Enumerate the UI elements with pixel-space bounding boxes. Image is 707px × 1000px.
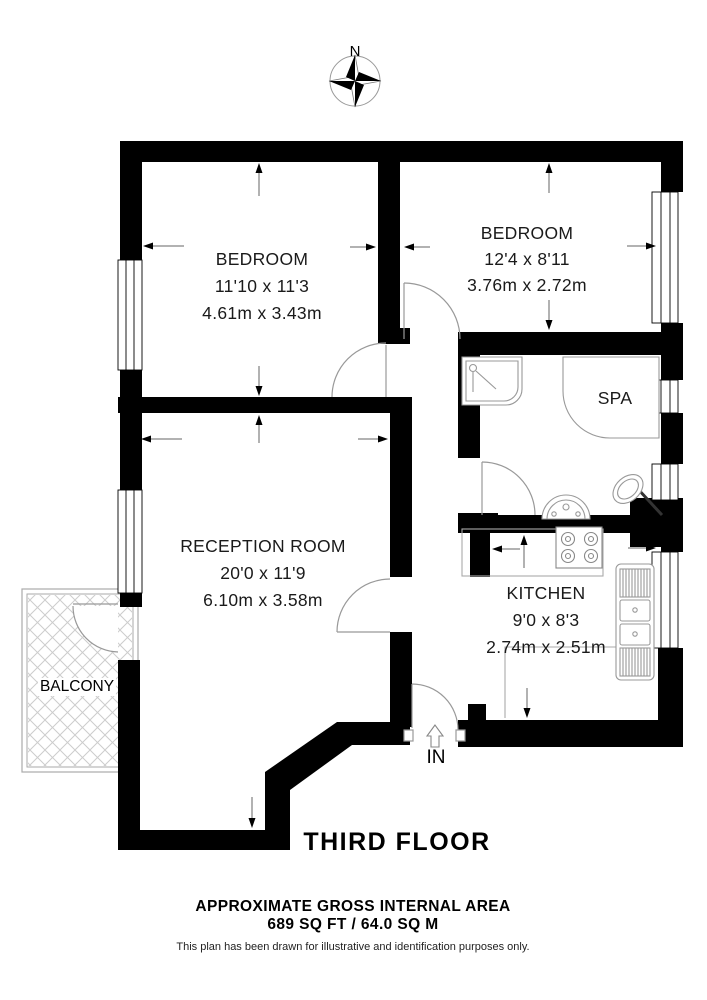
reception-window	[118, 490, 142, 593]
spa-door	[482, 462, 535, 515]
reception-imperial: 20'0 x 11'9	[180, 560, 346, 587]
wall-bedroom2-spa	[458, 332, 661, 355]
reception-name: RECEPTION ROOM	[180, 533, 346, 560]
floor-plan: N BEDROOM 11'10 x 11'3 4.61m x 3.43m BED…	[0, 0, 707, 1000]
spa-label: SPA	[598, 385, 633, 412]
wall-right	[661, 141, 683, 192]
area-value: 689 SQ FT / 64.0 SQ M	[267, 916, 438, 934]
wall-top	[120, 141, 683, 162]
hob	[556, 527, 602, 568]
reception-label: RECEPTION ROOM 20'0 x 11'9 6.10m x 3.58m	[180, 533, 346, 614]
wall-bottom	[118, 830, 290, 850]
bedroom2-imperial: 12'4 x 8'11	[467, 246, 587, 272]
bedroom1-name: BEDROOM	[202, 246, 322, 273]
kitchen-window	[652, 552, 678, 648]
bedroom2-label: BEDROOM 12'4 x 8'11 3.76m x 2.72m	[467, 220, 587, 298]
bedroom1-imperial: 11'10 x 11'3	[202, 273, 322, 300]
reception-metric: 6.10m x 3.58m	[180, 587, 346, 614]
bedroom2-name: BEDROOM	[467, 220, 587, 246]
bedroom2-metric: 3.76m x 2.72m	[467, 272, 587, 298]
kitchen-name: KITCHEN	[486, 580, 606, 607]
disclaimer-text: This plan has been drawn for illustrativ…	[176, 940, 529, 954]
entrance-label: IN	[427, 747, 446, 769]
kitchen-sink-unit	[616, 564, 654, 680]
bedroom1-label: BEDROOM 11'10 x 11'3 4.61m x 3.43m	[202, 246, 322, 327]
area-heading: APPROXIMATE GROSS INTERNAL AREA	[195, 898, 510, 916]
wall-kitchen-bottom	[458, 720, 683, 747]
balcony-label: BALCONY	[38, 678, 116, 696]
entrance-arrow-icon	[427, 725, 443, 747]
bedroom1-window	[118, 260, 142, 370]
kitchen-imperial: 9'0 x 8'3	[486, 607, 606, 634]
spa-window-2	[652, 464, 678, 500]
shower	[462, 357, 522, 405]
reception-dim-arrows	[141, 415, 388, 828]
wall-bedroom-divider	[378, 162, 400, 330]
bedroom2-door	[404, 283, 460, 339]
kitchen-label: KITCHEN 9'0 x 8'3 2.74m x 2.51m	[486, 580, 606, 661]
wall-left	[120, 141, 142, 260]
compass-north-label: N	[350, 38, 361, 65]
wall-reception-top	[118, 397, 412, 413]
bedroom2-window	[652, 192, 678, 323]
bedroom1-metric: 4.61m x 3.43m	[202, 300, 322, 327]
wash-basin	[542, 495, 590, 519]
kitchen-metric: 2.74m x 2.51m	[486, 634, 606, 661]
wall-reception-right	[390, 397, 412, 577]
bedroom1-door	[332, 343, 386, 397]
floor-title: THIRD FLOOR	[303, 828, 490, 856]
